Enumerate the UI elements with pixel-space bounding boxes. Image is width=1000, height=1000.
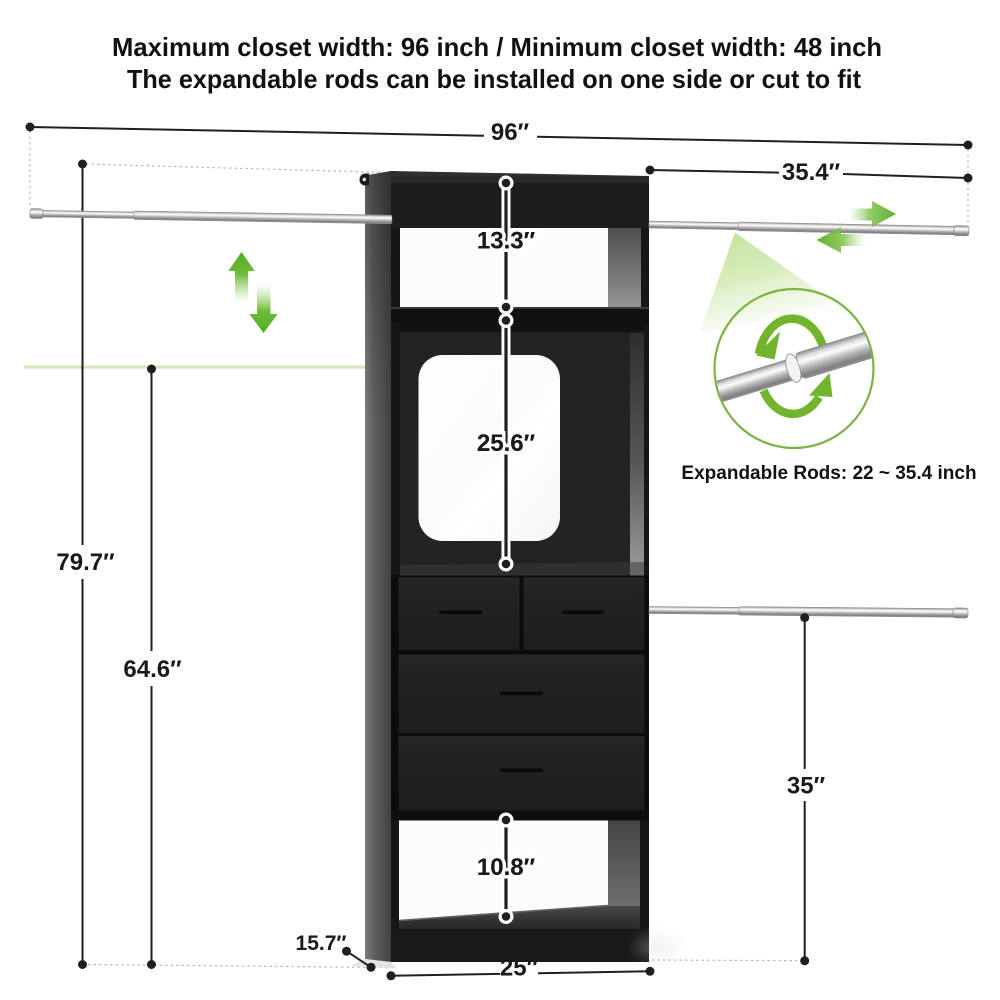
svg-text:10.8″: 10.8″	[477, 854, 536, 881]
svg-text:96″: 96″	[491, 119, 530, 146]
svg-text:15.7″: 15.7″	[296, 932, 347, 955]
svg-text:79.7″: 79.7″	[56, 549, 115, 576]
svg-text:35″: 35″	[787, 773, 826, 800]
svg-text:35.4″: 35.4″	[782, 159, 841, 186]
svg-text:13.3″: 13.3″	[477, 228, 536, 255]
svg-text:64.6″: 64.6″	[123, 656, 182, 683]
svg-text:The expandable rods can be ins: The expandable rods can be installed on …	[127, 64, 861, 94]
svg-text:Expandable Rods: 22 ~ 35.4 inc: Expandable Rods: 22 ~ 35.4 inch	[681, 463, 976, 484]
svg-text:25″: 25″	[500, 955, 539, 982]
svg-text:25.6″: 25.6″	[477, 430, 536, 457]
svg-text:Maximum closet width: 96 inch: Maximum closet width: 96 inch / Minimum …	[112, 32, 882, 62]
